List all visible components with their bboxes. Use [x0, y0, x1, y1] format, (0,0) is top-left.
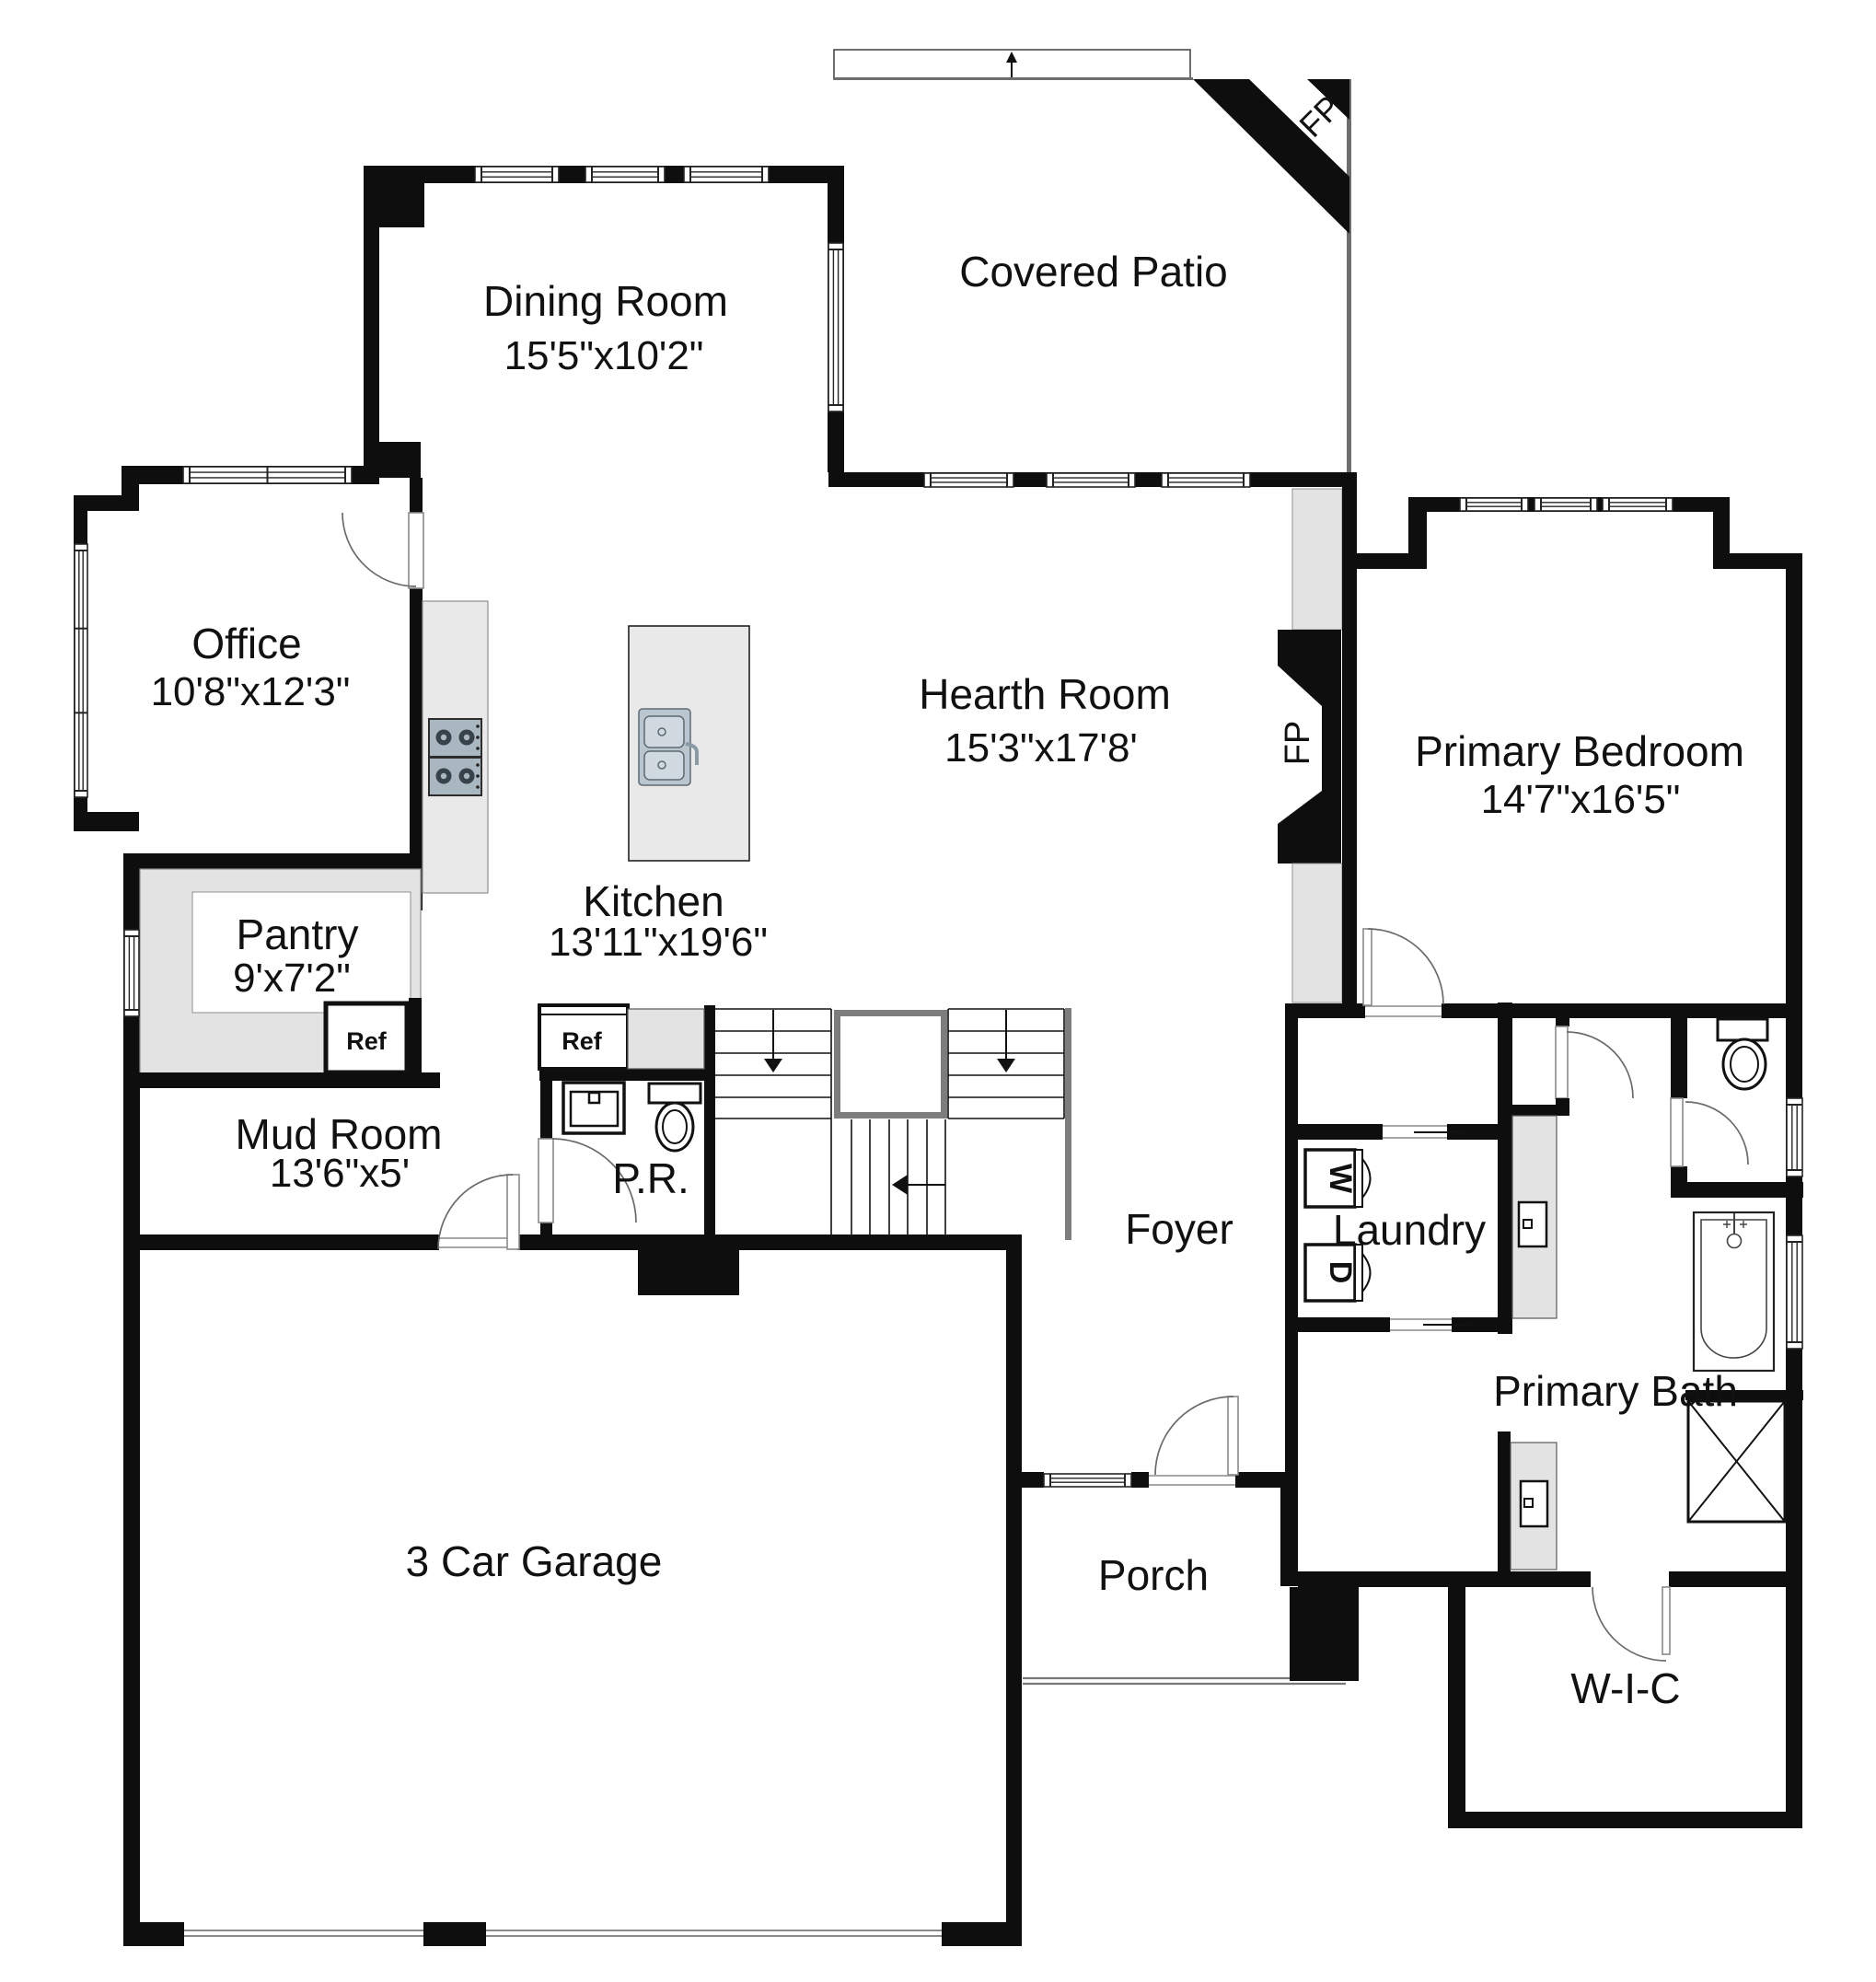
svg-text:Dining Room: Dining Room — [483, 277, 728, 325]
svg-text:Porch: Porch — [1098, 1551, 1209, 1599]
svg-text:Pantry: Pantry — [237, 910, 359, 958]
svg-text:13'11"x19'6": 13'11"x19'6" — [549, 920, 768, 965]
svg-text:13'6"x5': 13'6"x5' — [270, 1151, 410, 1196]
svg-text:Ref: Ref — [346, 1027, 388, 1055]
svg-text:Foyer: Foyer — [1125, 1205, 1233, 1253]
svg-text:FP: FP — [1279, 721, 1317, 766]
svg-text:W-I-C: W-I-C — [1570, 1664, 1680, 1712]
svg-text:Kitchen: Kitchen — [583, 877, 724, 925]
svg-text:14'7"x16'5": 14'7"x16'5" — [1481, 777, 1681, 822]
svg-text:D: D — [1323, 1261, 1358, 1284]
svg-text:Office: Office — [191, 620, 301, 667]
svg-text:Primary Bath: Primary Bath — [1493, 1367, 1738, 1415]
svg-text:Laundry: Laundry — [1333, 1206, 1486, 1254]
svg-text:9'x7'2": 9'x7'2" — [233, 956, 351, 1001]
svg-text:P.R.: P.R. — [612, 1154, 689, 1202]
svg-text:Ref: Ref — [562, 1027, 603, 1055]
svg-text:Hearth Room: Hearth Room — [919, 670, 1171, 718]
svg-text:10'8"x12'3": 10'8"x12'3" — [151, 669, 351, 714]
svg-text:W: W — [1323, 1164, 1358, 1194]
svg-text:15'5"x10'2": 15'5"x10'2" — [504, 333, 704, 378]
svg-text:Covered Patio: Covered Patio — [959, 248, 1228, 296]
svg-text:Primary Bedroom: Primary Bedroom — [1415, 727, 1744, 775]
svg-text:3 Car Garage: 3 Car Garage — [406, 1537, 663, 1585]
svg-text:15'3"x17'8': 15'3"x17'8' — [944, 725, 1138, 771]
